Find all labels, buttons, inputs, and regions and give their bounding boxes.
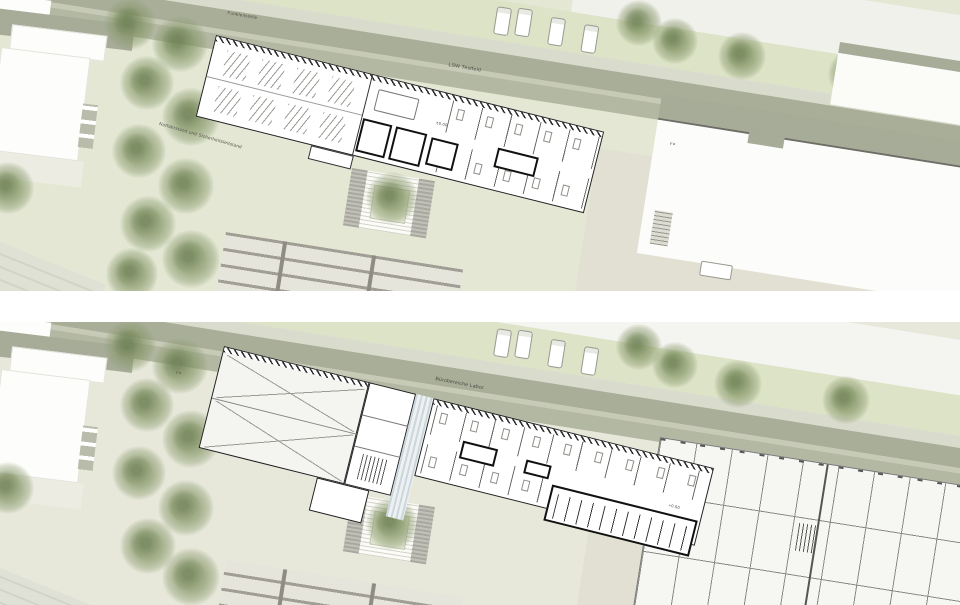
wc-core — [355, 118, 392, 158]
meeting-table — [373, 89, 419, 121]
plan-sheet: { "colors": { "lawn": "#e3e7d3", "lawn2"… — [0, 0, 960, 605]
workstation-group — [256, 59, 286, 90]
workstation-group — [326, 76, 356, 107]
entrance-canopy — [308, 145, 354, 169]
workstation-group — [282, 104, 312, 135]
terrace-separator — [363, 583, 376, 605]
tree — [652, 342, 698, 388]
terrace-steps — [213, 232, 463, 291]
tree — [106, 248, 158, 291]
level-label: ±0.00 — [436, 120, 448, 128]
workstation-group — [317, 112, 347, 143]
tree — [112, 124, 166, 178]
courtyard-tree — [366, 172, 418, 224]
tree — [162, 230, 220, 288]
tree-species-label: Fa — [670, 141, 675, 146]
tree — [822, 376, 870, 424]
workstation-group — [247, 95, 277, 126]
site-plan-ground-floor: ±0.00 Funkleitstelle LSW Testfeld Notfah… — [0, 0, 960, 291]
stair-hatch — [795, 523, 819, 554]
tree — [714, 360, 762, 408]
tree — [104, 0, 156, 50]
terrace-separator — [360, 255, 376, 291]
workstation-group — [212, 86, 242, 117]
site-plan-upper-floor: +0.50 Bürobereiche Labor Fa — [0, 322, 960, 605]
terrace-separator — [271, 241, 287, 291]
workstation-group — [291, 68, 321, 99]
path-steps-left — [0, 236, 106, 291]
workstation-group — [221, 50, 251, 81]
terrace-steps — [217, 560, 463, 605]
terrace-separator — [274, 569, 287, 605]
tree-species-label: Fa — [176, 370, 181, 375]
tree — [652, 18, 698, 64]
tree — [104, 322, 156, 372]
tree — [718, 32, 766, 80]
stair-hatch — [357, 454, 389, 486]
tree — [112, 446, 166, 500]
path-steps-left — [0, 562, 106, 605]
tree — [162, 548, 220, 605]
stair-core — [388, 126, 427, 167]
room-wall — [362, 415, 409, 428]
